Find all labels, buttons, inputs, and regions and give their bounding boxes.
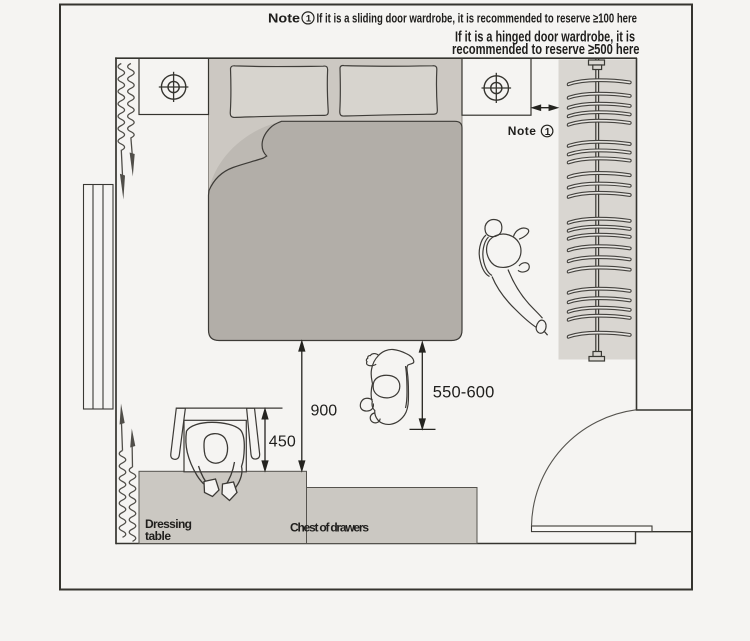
svg-text:900: 900 — [311, 403, 338, 420]
svg-text:Note: Note — [508, 124, 537, 138]
svg-text:If it is a sliding door wardro: If it is a sliding door wardrobe, it is … — [317, 11, 638, 25]
svg-text:550-600: 550-600 — [433, 384, 495, 402]
svg-text:Chest of drawers: Chest of drawers — [290, 521, 369, 535]
svg-text:recommended to reserve ≥500 he: recommended to reserve ≥500 here — [452, 41, 640, 58]
svg-text:450: 450 — [269, 434, 296, 451]
svg-text:table: table — [145, 529, 171, 543]
svg-text:1: 1 — [545, 127, 551, 138]
svg-text:1: 1 — [306, 14, 312, 25]
svg-text:Note: Note — [268, 11, 300, 25]
